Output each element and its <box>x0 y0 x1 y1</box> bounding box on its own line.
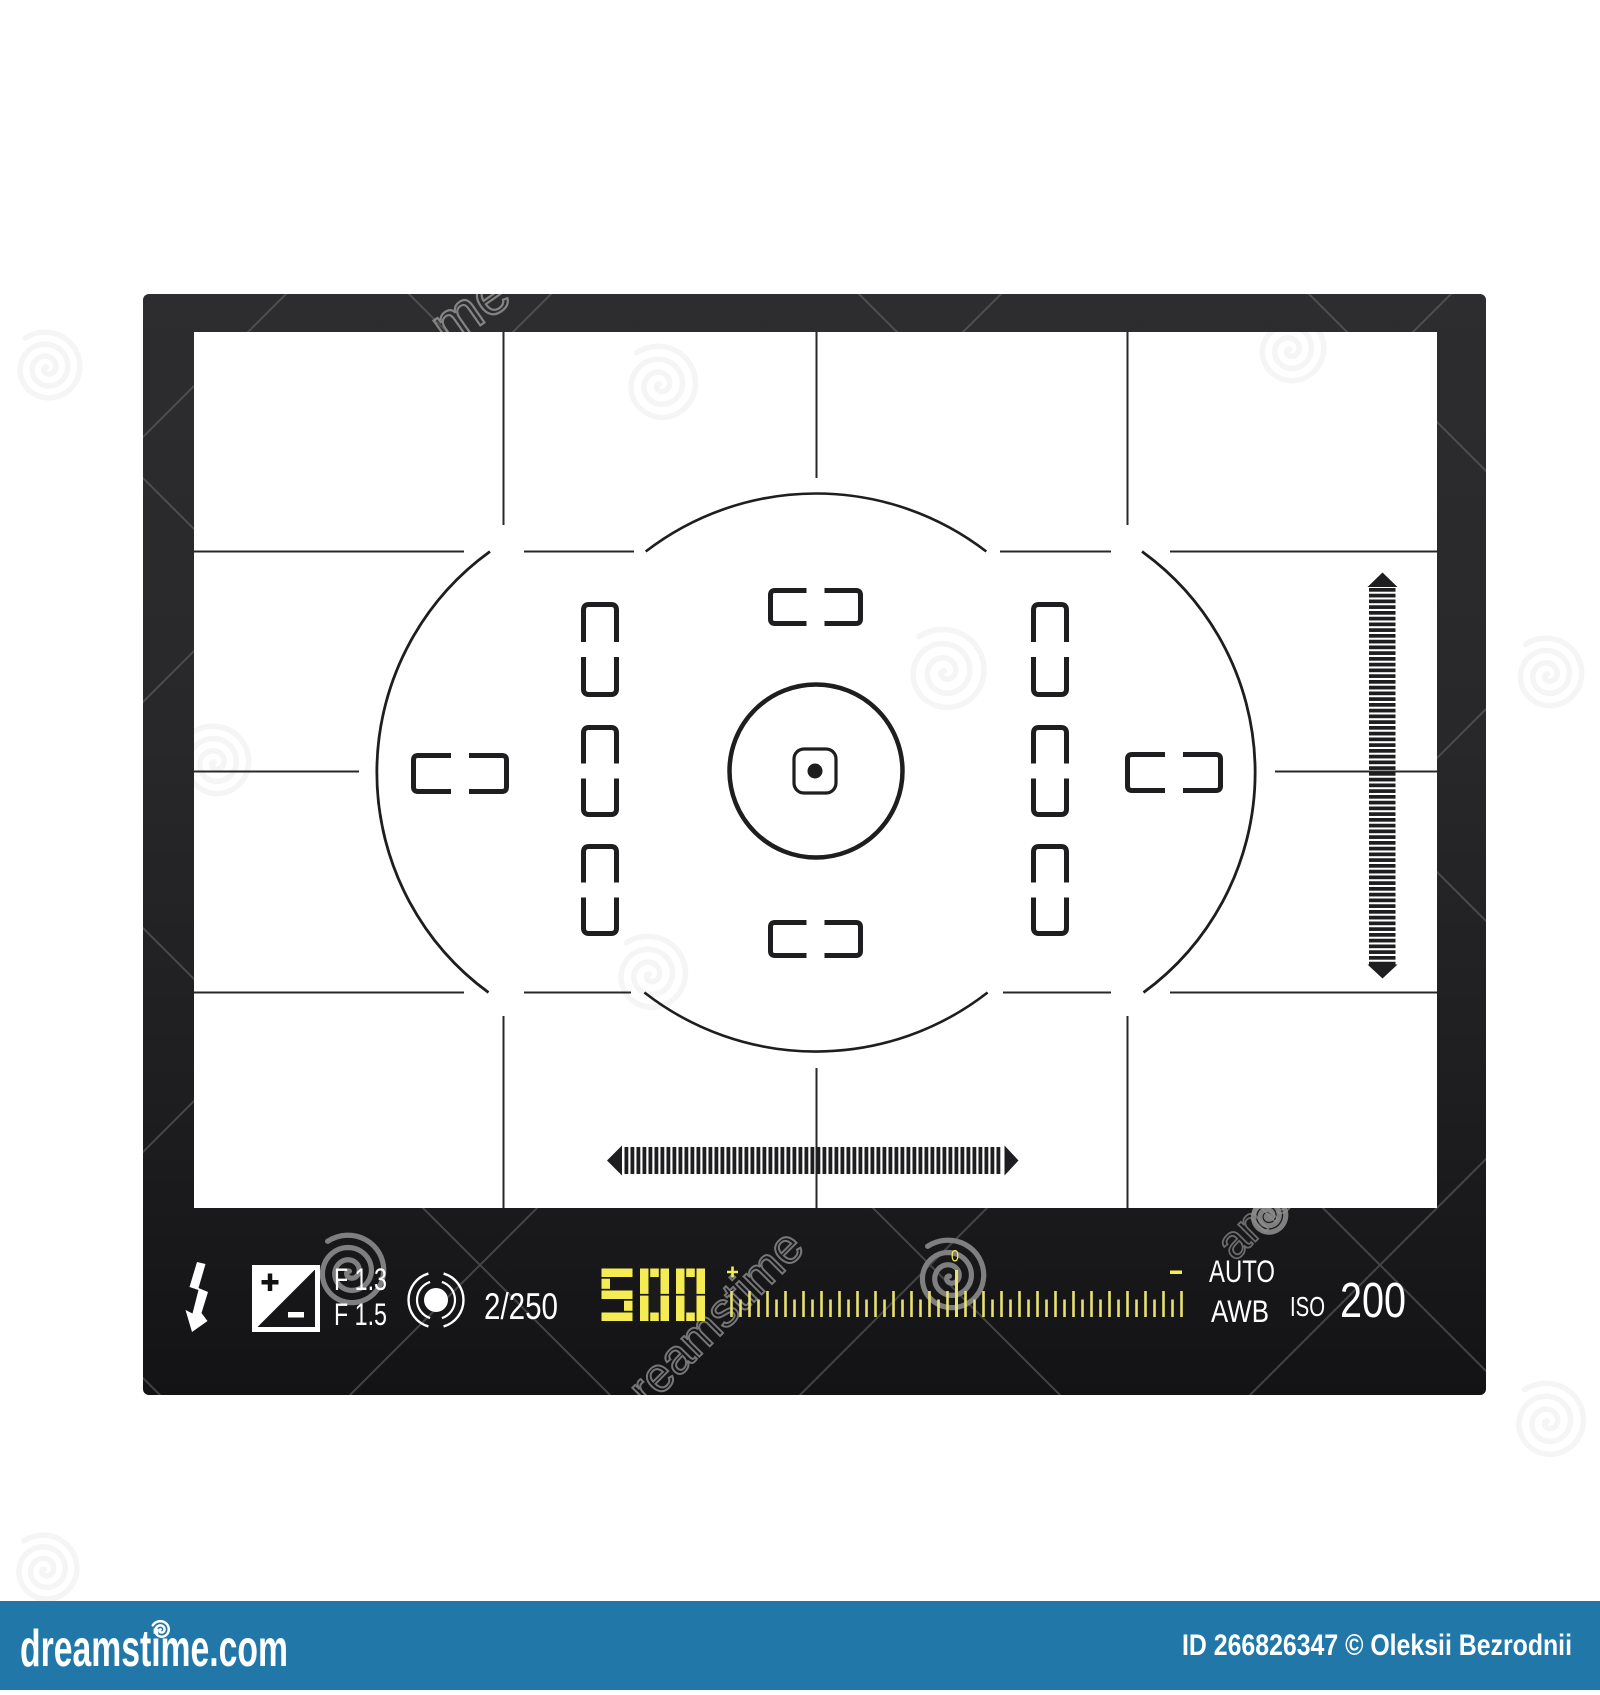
svg-text:AUTO: AUTO <box>1209 1253 1275 1289</box>
svg-text:ISO: ISO <box>1290 1291 1325 1322</box>
svg-text:AWB: AWB <box>1211 1293 1269 1329</box>
svg-text:0: 0 <box>951 1247 959 1266</box>
svg-text:2/250: 2/250 <box>484 1286 558 1327</box>
svg-text:dreamstime.com: dreamstime.com <box>20 1620 288 1678</box>
svg-text:F 1.3: F 1.3 <box>334 1261 387 1297</box>
svg-text:F 1.5: F 1.5 <box>334 1296 387 1332</box>
svg-text:200: 200 <box>1340 1273 1406 1328</box>
svg-text:ID 266826347 © Oleksii Bezrodn: ID 266826347 © Oleksii Bezrodnii <box>1182 1629 1572 1662</box>
